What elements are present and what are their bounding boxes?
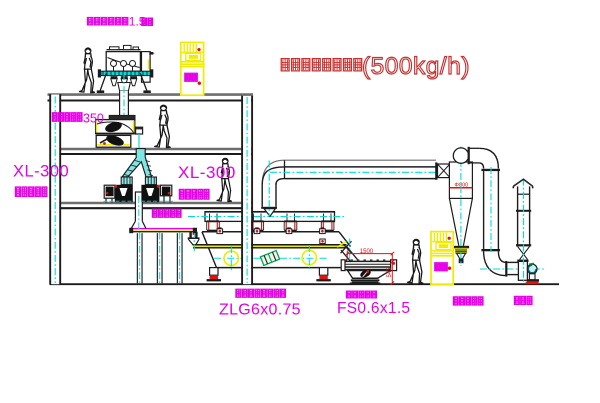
svg-text:545: 545 xyxy=(387,267,393,278)
svg-text:(500kg/h): (500kg/h) xyxy=(362,53,470,80)
svg-text:350: 350 xyxy=(83,112,104,126)
svg-text:FS0.6x1.5: FS0.6x1.5 xyxy=(337,300,410,317)
svg-text:XL-300: XL-300 xyxy=(13,163,69,181)
svg-text:1500: 1500 xyxy=(360,249,374,255)
svg-text:ZLG6x0.75: ZLG6x0.75 xyxy=(219,302,301,319)
svg-text:XL-300: XL-300 xyxy=(178,163,236,182)
